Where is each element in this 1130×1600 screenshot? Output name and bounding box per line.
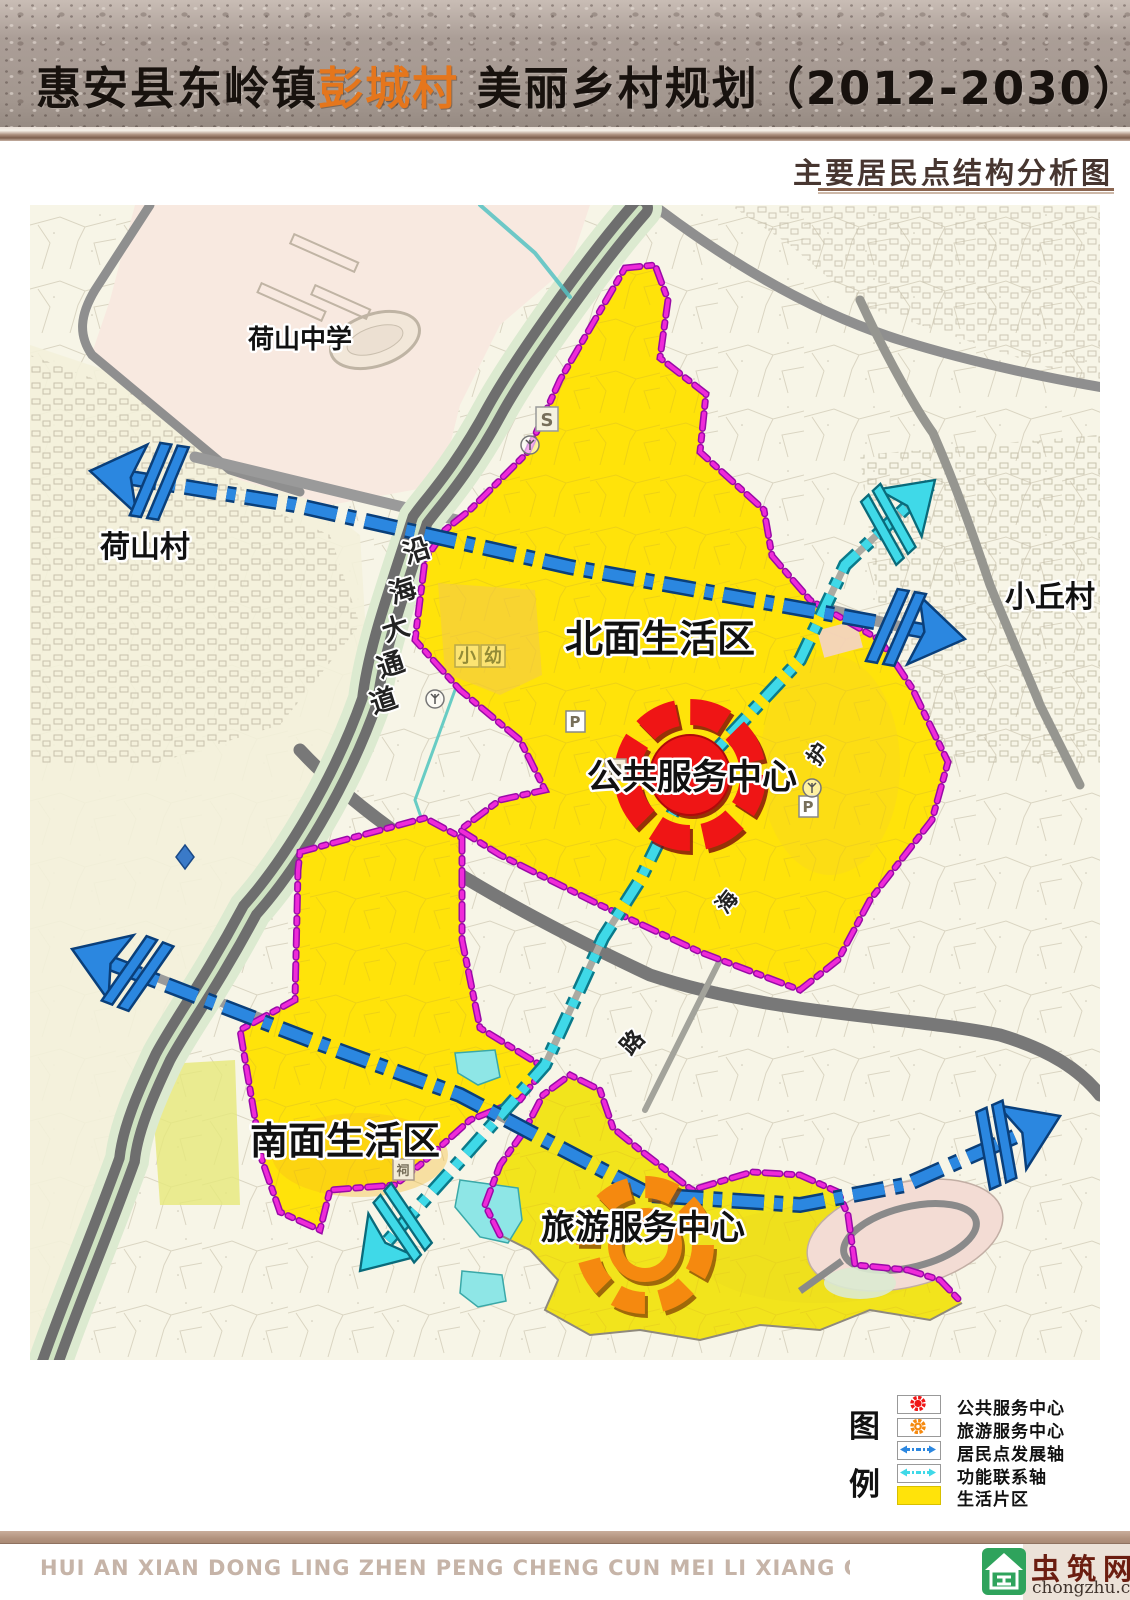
label-north-zone: 北面生活区 <box>565 617 755 661</box>
svg-text:小: 小 <box>458 646 476 667</box>
legend-label: 居民点发展轴 <box>957 1440 1065 1465</box>
legend-label: 生活片区 <box>957 1485 1029 1510</box>
subtitle-underline-shadow <box>818 192 1114 194</box>
banner-divider <box>0 127 1130 141</box>
title-village-name: 彭城村 <box>318 62 459 115</box>
label-xiaoqiu-village: 小丘村 <box>1005 580 1095 615</box>
svg-text:S: S <box>541 410 554 431</box>
development-axis-mini-icon <box>898 1442 938 1457</box>
label-south-zone: 南面生活区 <box>250 1119 440 1163</box>
legend-swatch-public-center <box>897 1395 941 1414</box>
subtitle-underline <box>818 188 1114 191</box>
legend: 图 例 公共服务中心 旅游服务中心 <box>835 1385 1120 1515</box>
chongzhu-logo-icon <box>982 1548 1026 1595</box>
public-center-mini-icon <box>898 1396 938 1411</box>
svg-text:P: P <box>803 798 814 816</box>
tree-icon <box>521 436 539 454</box>
plan-poster-page: 惠安县东岭镇彭城村 美丽乡村规划（2012-2030） 主要居民点结构分析图 <box>0 0 1130 1600</box>
label-heshan-village: 荷山村 <box>100 530 190 565</box>
label-heshan-school: 荷山中学 <box>248 324 352 355</box>
svg-text:幼: 幼 <box>484 645 502 667</box>
legend-title-char-2: 例 <box>849 1459 880 1504</box>
footer-divider-bar <box>0 1531 1130 1544</box>
legend-swatch-tourism-center <box>897 1418 941 1437</box>
legend-label: 公共服务中心 <box>957 1394 1065 1419</box>
legend-swatch-function-axis <box>897 1464 941 1483</box>
title-banner: 惠安县东岭镇彭城村 美丽乡村规划（2012-2030） <box>0 0 1130 128</box>
tourism-center-mini-icon <box>898 1419 938 1434</box>
title-prefix: 惠安县东岭镇 <box>36 62 318 115</box>
parking-icon: P <box>566 711 585 732</box>
logo-site-domain: chongzhu.cn <box>1032 1578 1130 1598</box>
legend-swatch-development-axis <box>897 1441 941 1460</box>
house-icon <box>982 1548 1026 1595</box>
legend-title-char-1: 图 <box>849 1401 880 1446</box>
s-marker-icon: S <box>536 407 558 431</box>
parking-icon-2: P <box>799 796 818 817</box>
function-axis-mini-icon <box>898 1465 938 1480</box>
label-public-center: 公共服务中心 <box>587 758 797 798</box>
master-plan-map: S P P 祠 祠 小 幼 <box>30 205 1100 1360</box>
drawing-subtitle: 主要居民点结构分析图 <box>0 150 1113 192</box>
svg-text:P: P <box>570 713 581 731</box>
legend-swatch-living-area <box>897 1486 941 1505</box>
svg-text:祠: 祠 <box>396 1163 409 1179</box>
title-suffix: 美丽乡村规划（2012-2030） <box>459 62 1130 115</box>
legend-label: 旅游服务中心 <box>957 1417 1065 1442</box>
label-tourism-center: 旅游服务中心 <box>541 1208 745 1248</box>
page-title: 惠安县东岭镇彭城村 美丽乡村规划（2012-2030） <box>36 52 1130 117</box>
tree-icon-3 <box>803 779 821 797</box>
footer-pinyin-text: HUI AN XIAN DONG LING ZHEN PENG CHENG CU… <box>40 1556 850 1580</box>
tree-icon-2 <box>426 690 444 708</box>
